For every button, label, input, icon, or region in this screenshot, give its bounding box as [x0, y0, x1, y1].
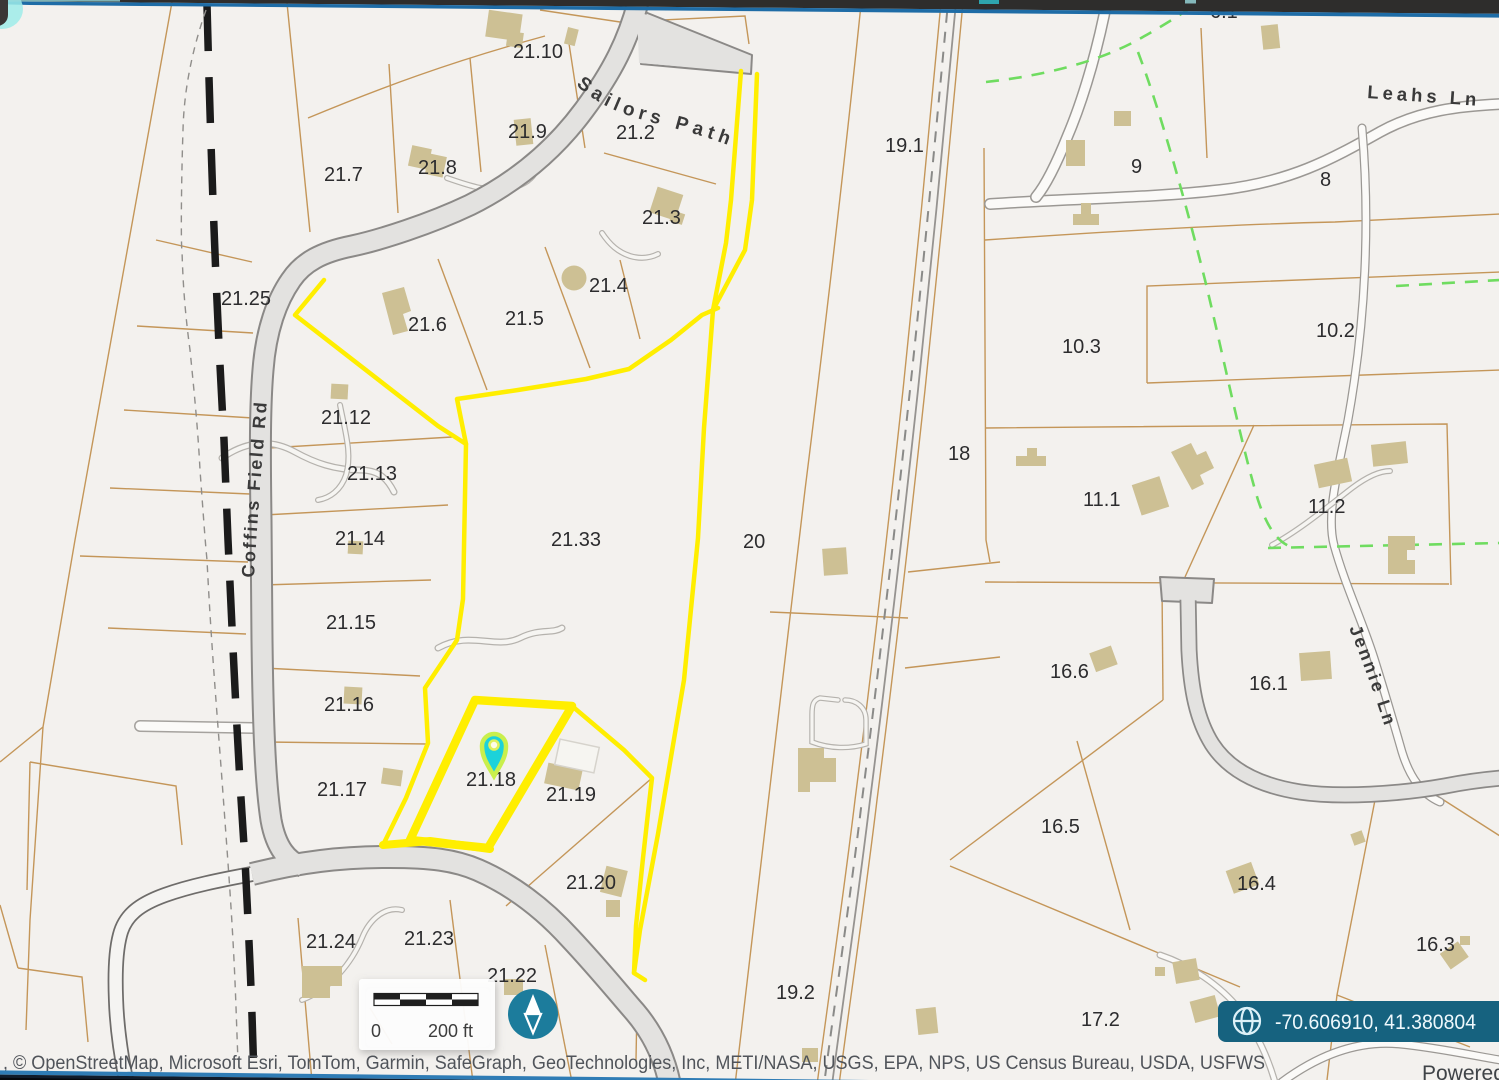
svg-text:21.6: 21.6: [408, 314, 447, 336]
svg-text:16.6: 16.6: [1050, 661, 1089, 683]
svg-text:21.20: 21.20: [566, 872, 616, 894]
svg-text:16.3: 16.3: [1416, 934, 1455, 956]
svg-text:8: 8: [1320, 169, 1331, 191]
svg-text:9: 9: [1131, 156, 1142, 178]
svg-text:21.9: 21.9: [508, 121, 547, 143]
svg-text:200 ft: 200 ft: [428, 1021, 473, 1041]
svg-text:21.5: 21.5: [505, 308, 544, 330]
svg-text:21.24: 21.24: [306, 931, 356, 953]
svg-text:21.16: 21.16: [324, 694, 374, 716]
svg-text:10.2: 10.2: [1316, 320, 1355, 342]
svg-text:21.4: 21.4: [589, 275, 628, 297]
svg-text:16.5: 16.5: [1041, 816, 1080, 838]
svg-text:16.1: 16.1: [1249, 673, 1288, 695]
svg-text:21.19: 21.19: [546, 784, 596, 806]
svg-text:19.1: 19.1: [885, 135, 924, 157]
svg-text:16.4: 16.4: [1237, 873, 1276, 895]
svg-text:21.3: 21.3: [642, 207, 681, 229]
svg-text:0: 0: [371, 1021, 381, 1041]
svg-text:20: 20: [743, 531, 765, 553]
svg-text:21.23: 21.23: [404, 928, 454, 950]
svg-text:21.17: 21.17: [317, 779, 367, 801]
svg-text:-70.606910, 41.380804: -70.606910, 41.380804: [1275, 1011, 1476, 1034]
svg-text:21.8: 21.8: [418, 157, 457, 179]
svg-text:, © OpenStreetMap, Microsoft E: , © OpenStreetMap, Microsoft Esri, TomTo…: [3, 1053, 1265, 1074]
svg-text:21.15: 21.15: [326, 612, 376, 634]
svg-text:17.2: 17.2: [1081, 1009, 1120, 1031]
svg-text:21.7: 21.7: [324, 164, 363, 186]
svg-text:19.2: 19.2: [776, 982, 815, 1004]
svg-text:10.3: 10.3: [1062, 336, 1101, 358]
svg-text:18: 18: [948, 443, 970, 465]
svg-text:11.2: 11.2: [1308, 496, 1345, 518]
svg-text:Powered: Powered: [1422, 1062, 1499, 1080]
svg-text:21.10: 21.10: [513, 41, 563, 63]
svg-text:11.1: 11.1: [1083, 489, 1120, 511]
svg-text:21.14: 21.14: [335, 528, 385, 550]
svg-text:21.12: 21.12: [321, 407, 371, 429]
svg-text:21.33: 21.33: [551, 529, 601, 551]
svg-text:21.25: 21.25: [221, 288, 271, 310]
svg-text:21.13: 21.13: [347, 463, 397, 485]
